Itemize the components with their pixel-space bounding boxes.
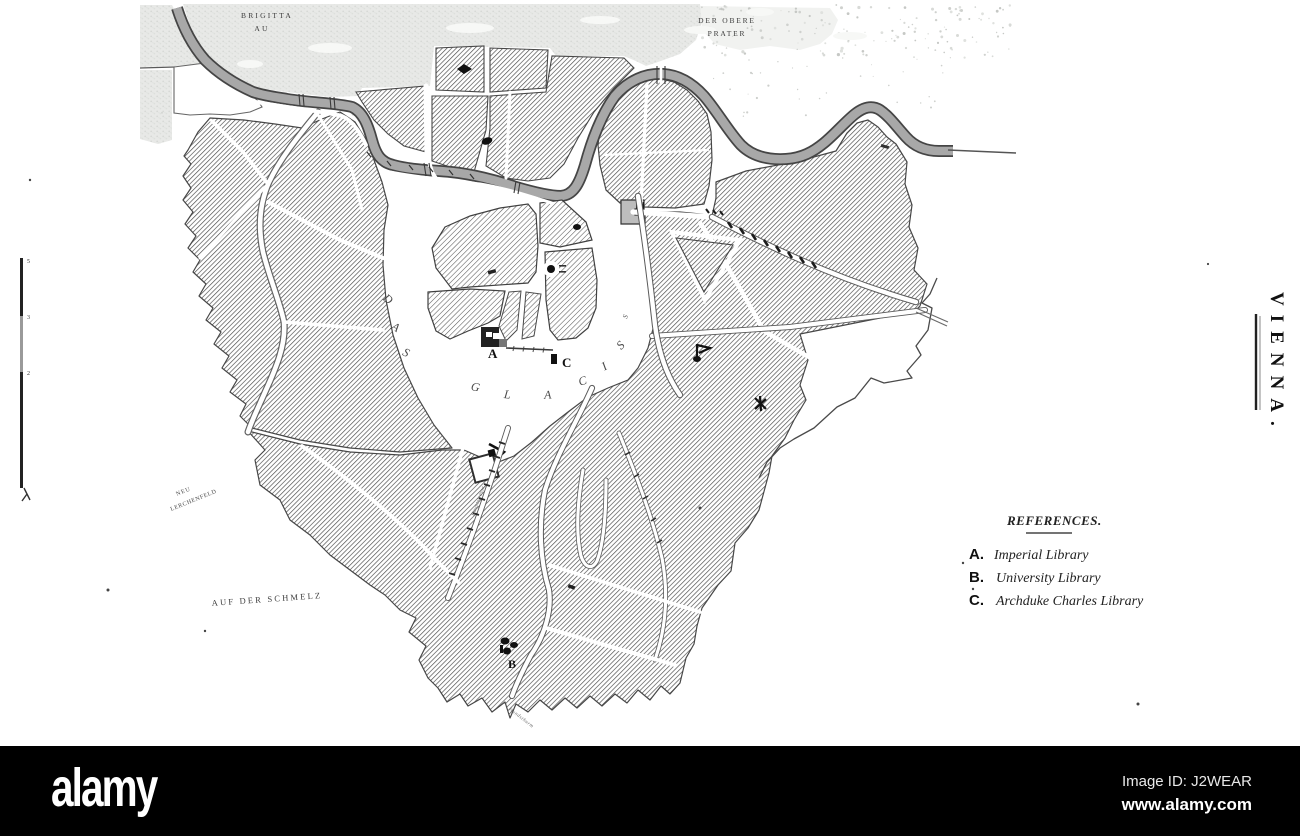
svg-text:www.alamy.com: www.alamy.com	[1121, 795, 1252, 814]
svg-text:5: 5	[27, 259, 30, 265]
svg-text:C: C	[562, 355, 571, 370]
svg-text:PRATER: PRATER	[708, 29, 747, 38]
svg-text:BRIGITTA: BRIGITTA	[241, 11, 293, 20]
svg-text:University Library: University Library	[996, 571, 1101, 586]
svg-text:A: A	[488, 346, 498, 361]
svg-text:REFERENCES.: REFERENCES.	[1006, 513, 1102, 528]
svg-text:C.: C.	[969, 592, 984, 609]
svg-text:VIENNA.: VIENNA.	[1266, 292, 1287, 435]
svg-text:Imperial Library: Imperial Library	[993, 548, 1089, 563]
svg-text:3: 3	[27, 315, 30, 321]
svg-text:AU: AU	[254, 24, 269, 33]
svg-text:Archduke Charles Library: Archduke Charles Library	[995, 594, 1144, 609]
svg-text:alamy: alamy	[51, 758, 159, 818]
svg-text:A.: A.	[969, 546, 984, 563]
svg-text:A: A	[542, 387, 552, 402]
svg-text:Image ID: J2WEAR: Image ID: J2WEAR	[1122, 773, 1252, 790]
svg-text:B: B	[508, 657, 516, 671]
svg-text:2: 2	[27, 371, 30, 377]
svg-text:B.: B.	[969, 569, 984, 586]
svg-text:DER OBERE: DER OBERE	[698, 16, 756, 25]
